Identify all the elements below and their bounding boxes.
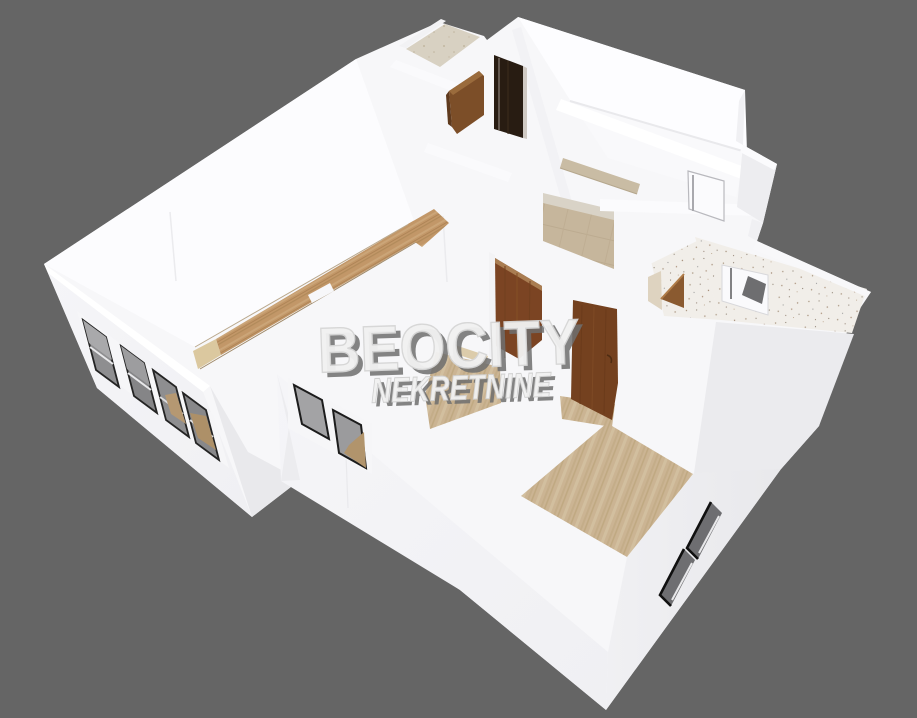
svg-text:NEKRETNINE: NEKRETNINE (370, 365, 553, 410)
